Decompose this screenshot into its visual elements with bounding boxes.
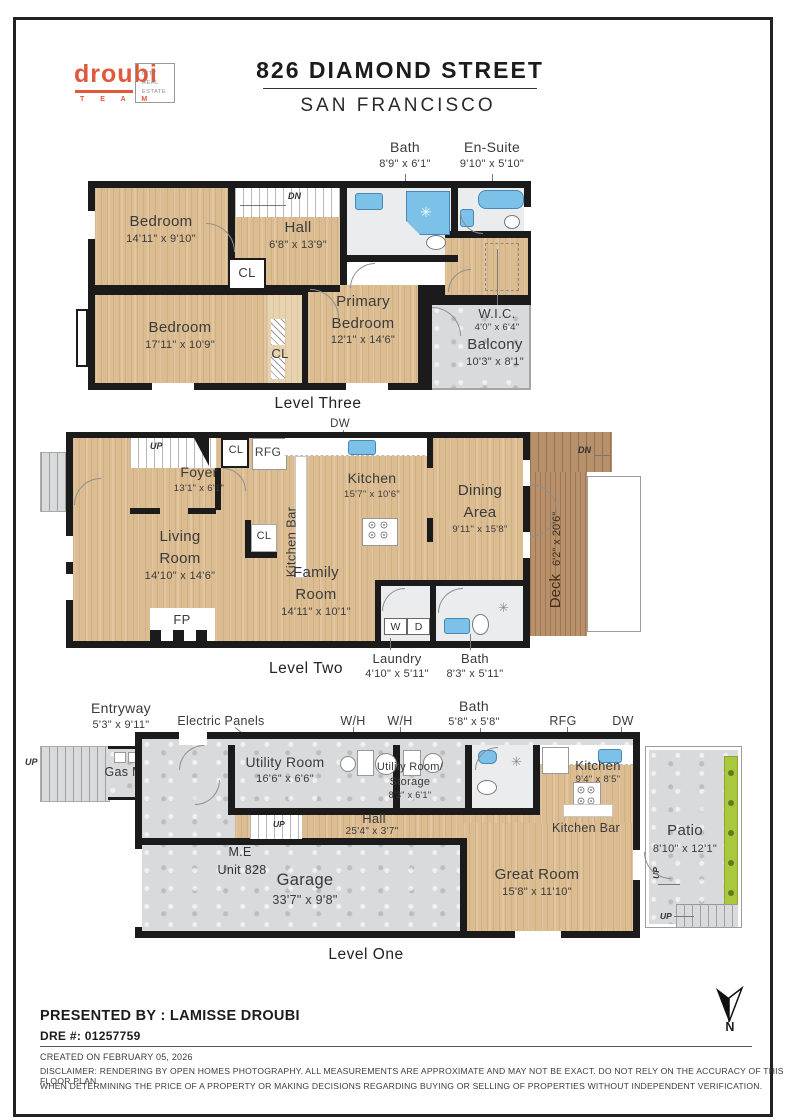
l1-fridge — [542, 747, 569, 774]
l2-dw-label: DW — [330, 418, 350, 430]
l3-closet-shelf-hatch — [271, 319, 285, 345]
l2-stove — [362, 518, 398, 546]
l2-deck-name: Deck — [547, 574, 564, 608]
l3-bedroom1-name: Bedroom — [130, 213, 193, 230]
l1-garage-door — [135, 849, 142, 927]
shower-light-icon: ✳ — [511, 754, 522, 770]
shower-head-icon: ✳ — [420, 204, 432, 221]
planter-plant-icon — [728, 860, 734, 866]
l2-dining-dim: 9'11" x 15'8" — [452, 524, 507, 535]
l2-deck-dim: 6'2" x 20'6" — [551, 512, 563, 566]
l2-wall — [427, 438, 433, 468]
l2-living-name-2: Room — [159, 550, 200, 567]
l1-kitchen-bar-counter — [563, 804, 613, 817]
l2-fireplace-teeth — [150, 630, 215, 641]
l2-wall — [188, 508, 216, 514]
l2-washer: W — [384, 618, 407, 635]
l2-dishwasher — [348, 440, 376, 455]
l1-wh1-label: W/H — [340, 714, 365, 728]
l3-wic-dim: 4'0" x 6'4" — [475, 322, 520, 333]
l1-entry-opening — [179, 732, 207, 745]
l2-cl2-label: CL — [257, 530, 272, 542]
l2-wall — [427, 518, 433, 542]
l2-laundry-name: Laundry — [372, 651, 421, 666]
l3-hall-dim: 6'8" x 13'9" — [269, 239, 327, 251]
l2-deck-railing — [587, 476, 641, 632]
l1-electric-panels-label: Electric Panels — [177, 714, 264, 728]
l2-dryer: D — [407, 618, 430, 635]
l3-balcony-dim: 10'3" x 8'1" — [466, 356, 524, 368]
l2-window — [66, 536, 73, 562]
l3-primary-dim: 12'1" x 14'6" — [331, 334, 395, 346]
l1-wall — [228, 745, 235, 815]
l2-bath-toilet — [472, 614, 489, 635]
l1-utility-name: Utility Room — [245, 754, 324, 770]
l2-wall — [251, 552, 277, 558]
l3-bedroom2-dim: 17'11" x 10'9" — [145, 339, 215, 351]
l1-exterior-stairs — [40, 746, 110, 802]
l2-family-name-1: Family — [293, 564, 339, 581]
l2-family-dim: 14'11" x 10'1" — [281, 606, 351, 618]
planter-plant-icon — [728, 830, 734, 836]
l3-primary-name-1: Primary — [336, 293, 390, 310]
footer-divider — [40, 1046, 752, 1047]
l2-window — [66, 574, 73, 600]
level-two-plan: UP CL RFG Kitchen Bar CL W D — [66, 432, 530, 648]
l2-living-dim: 14'10" x 14'6" — [145, 570, 216, 582]
l2-stair-wedge — [194, 438, 209, 466]
level-one-caption: Level One — [328, 946, 403, 964]
l1-great-room-dim: 15'8" x 11'10" — [502, 886, 572, 898]
l1-entryway-dim: 5'3" x 9'11" — [93, 719, 150, 731]
page-subtitle: SAN FRANCISCO — [300, 95, 495, 117]
l1-gas-meter-box — [114, 752, 126, 763]
l3-bath-label: Bath — [390, 139, 420, 155]
l1-utility-cabinet — [357, 750, 374, 776]
l3-wic-leader-line — [497, 249, 498, 305]
l2-fp-label: FP — [173, 612, 190, 627]
l3-wall — [340, 188, 347, 262]
l2-dining-name-1: Dining — [458, 482, 502, 499]
l3-bath-sink — [355, 193, 383, 210]
l1-rfg-label: RFG — [549, 714, 576, 728]
city-real-estate-badge: CITY REAL ESTATE — [135, 63, 175, 103]
l2-up-label: UP — [150, 441, 163, 451]
l1-patio-name: Patio — [667, 822, 703, 839]
l3-bath-toilet — [426, 235, 446, 250]
l1-garage-dim: 33'7" x 9'8" — [272, 893, 337, 907]
l1-up-patio2-label: UP — [660, 911, 672, 921]
l2-kitchen-dim: 15'7" x 10'6" — [344, 489, 400, 500]
l1-patio-step-line2 — [674, 916, 694, 917]
planter-plant-icon — [728, 800, 734, 806]
presented-by: PRESENTED BY : LAMISSE DROUBI — [40, 1008, 300, 1024]
l1-up-left-label: UP — [25, 757, 38, 767]
l2-wall — [375, 580, 381, 641]
l2-bath-dim: 8'3" x 5'11" — [447, 668, 504, 680]
l3-wall — [95, 285, 340, 292]
l2-foyer-dim: 13'1" x 6'1" — [174, 483, 224, 494]
l1-kitchen-name: Kitchen — [575, 758, 620, 773]
l3-hall-name: Hall — [284, 219, 311, 236]
l2-kitchen-name: Kitchen — [348, 470, 397, 486]
l3-wic-name: W.I.C. — [478, 306, 515, 321]
disclaimer-line-2: WHEN DETERMINING THE PRICE OF A PROPERTY… — [40, 1081, 762, 1091]
l3-bedroom2-name: Bedroom — [149, 319, 212, 336]
l1-me-label: M.E — [228, 845, 251, 859]
level-two-caption: Level Two — [269, 660, 343, 678]
l1-storage-name-2: Storage — [390, 776, 431, 788]
level-three-plan: ✳ DN Bedroom 14'11" x 9'10" Hall 6'8" x … — [88, 181, 531, 390]
l2-deck-dn-label: DN — [578, 445, 591, 455]
l1-wall — [460, 838, 467, 931]
l3-ensuite-toilet — [504, 215, 520, 229]
level-one-plan: ✳ UP Utility Room 16'6" x 6'6" Utility R… — [135, 732, 640, 938]
l3-cl-top-label: CL — [238, 265, 255, 280]
l1-storage-dim: 8'3" x 6'1" — [389, 790, 432, 800]
l2-deck-stairs — [530, 432, 612, 472]
l1-great-room-name: Great Room — [495, 866, 580, 883]
page-title: 826 DIAMOND STREET — [256, 57, 544, 84]
l1-bath-dim: 5'8" x 5'8" — [448, 716, 499, 728]
l1-hall-dim: 25'4" x 3'7" — [346, 826, 399, 837]
l2-window — [523, 460, 530, 486]
l2-window — [523, 532, 530, 558]
l1-window — [633, 850, 640, 880]
l1-garage-name: Garage — [277, 871, 334, 890]
l2-living-name-1: Living — [160, 528, 201, 545]
l3-balcony-name: Balcony — [467, 336, 522, 353]
north-arrow-icon — [714, 986, 744, 1024]
l2-cl1-label: CL — [229, 444, 244, 456]
l1-storage-name-1: Utility Room/ — [377, 761, 443, 773]
dre-number: DRE #: 01257759 — [40, 1029, 141, 1043]
l1-unit-label: Unit 828 — [218, 863, 267, 877]
l2-bath-sink — [444, 618, 470, 634]
l3-window — [88, 211, 95, 239]
l3-wic-dashed-closet — [485, 243, 519, 291]
l3-bedroom1-dim: 14'11" x 9'10" — [126, 233, 196, 245]
created-date: CREATED ON FEBRUARY 05, 2026 — [40, 1052, 193, 1062]
l1-entryway-label: Entryway — [91, 700, 151, 716]
l3-wall — [340, 255, 458, 262]
l2-rfg-label: RFG — [255, 445, 281, 459]
l3-ensuite-dim: 9'10" x 5'10" — [460, 158, 524, 170]
level-three-caption: Level Three — [274, 395, 361, 413]
l2-laundry-leader — [390, 638, 391, 650]
l1-wall — [465, 745, 472, 815]
l3-ensuite-label: En-Suite — [464, 139, 520, 155]
l3-window — [524, 207, 531, 231]
l1-wh2-label: W/H — [387, 714, 412, 728]
l3-dn-label: DN — [288, 191, 301, 201]
planter-plant-icon — [728, 770, 734, 776]
planter-plant-icon — [728, 890, 734, 896]
l1-kitchen-bar-label: Kitchen Bar — [552, 821, 620, 835]
l2-wall — [430, 580, 436, 641]
l3-stair-arrow — [240, 205, 286, 206]
l1-hall-name: Hall — [362, 811, 386, 826]
stove-burners-icon — [363, 519, 393, 541]
title-divider — [263, 88, 537, 89]
l1-wall — [140, 838, 465, 845]
l2-wall — [375, 580, 523, 586]
l1-kitchen-dim: 9'4" x 8'5" — [576, 774, 621, 785]
floor-plan-flyer: droubi T E A M CITY REAL ESTATE 826 DIAM… — [0, 0, 792, 1120]
l3-wall — [445, 231, 528, 238]
l1-bath-toilet — [477, 780, 497, 795]
l1-utility-sink — [340, 756, 356, 772]
l3-bath-dim: 8'9" x 6'1" — [379, 158, 430, 170]
l2-bath-name: Bath — [461, 651, 489, 666]
l2-kitchen-bar-label-wrap: Kitchen Bar — [284, 482, 298, 602]
l2-family-name-2: Room — [295, 586, 336, 603]
l1-patio-step-line — [658, 884, 680, 885]
l2-foyer-name: Foyer — [180, 464, 217, 480]
l1-bath-label: Bath — [459, 698, 489, 714]
l3-cl-mid-label: CL — [271, 346, 288, 361]
l2-bath-leader — [470, 634, 471, 650]
l1-dw-label: DW — [612, 714, 633, 728]
shower-light-icon: ✳ — [498, 600, 509, 616]
l3-window — [152, 383, 194, 390]
l2-laundry-dim: 4'10" x 5'11" — [365, 668, 428, 680]
l1-utility-dim: 16'6" x 6'6" — [256, 773, 314, 785]
l3-primary-name-2: Bedroom — [332, 315, 395, 332]
l2-wall — [130, 508, 160, 514]
l2-deck-dn-arrow — [594, 455, 610, 456]
l2-deck-door-arc — [530, 484, 557, 511]
l3-window — [346, 383, 388, 390]
l3-bay-window — [76, 309, 88, 367]
north-label: N — [725, 1020, 734, 1034]
logo-underline — [75, 90, 133, 93]
l1-up-hall-label: UP — [273, 819, 285, 829]
l2-dining-name-2: Area — [464, 504, 497, 521]
l1-wall — [533, 745, 540, 815]
l1-window — [515, 931, 561, 938]
l3-ensuite-tub — [478, 190, 524, 209]
